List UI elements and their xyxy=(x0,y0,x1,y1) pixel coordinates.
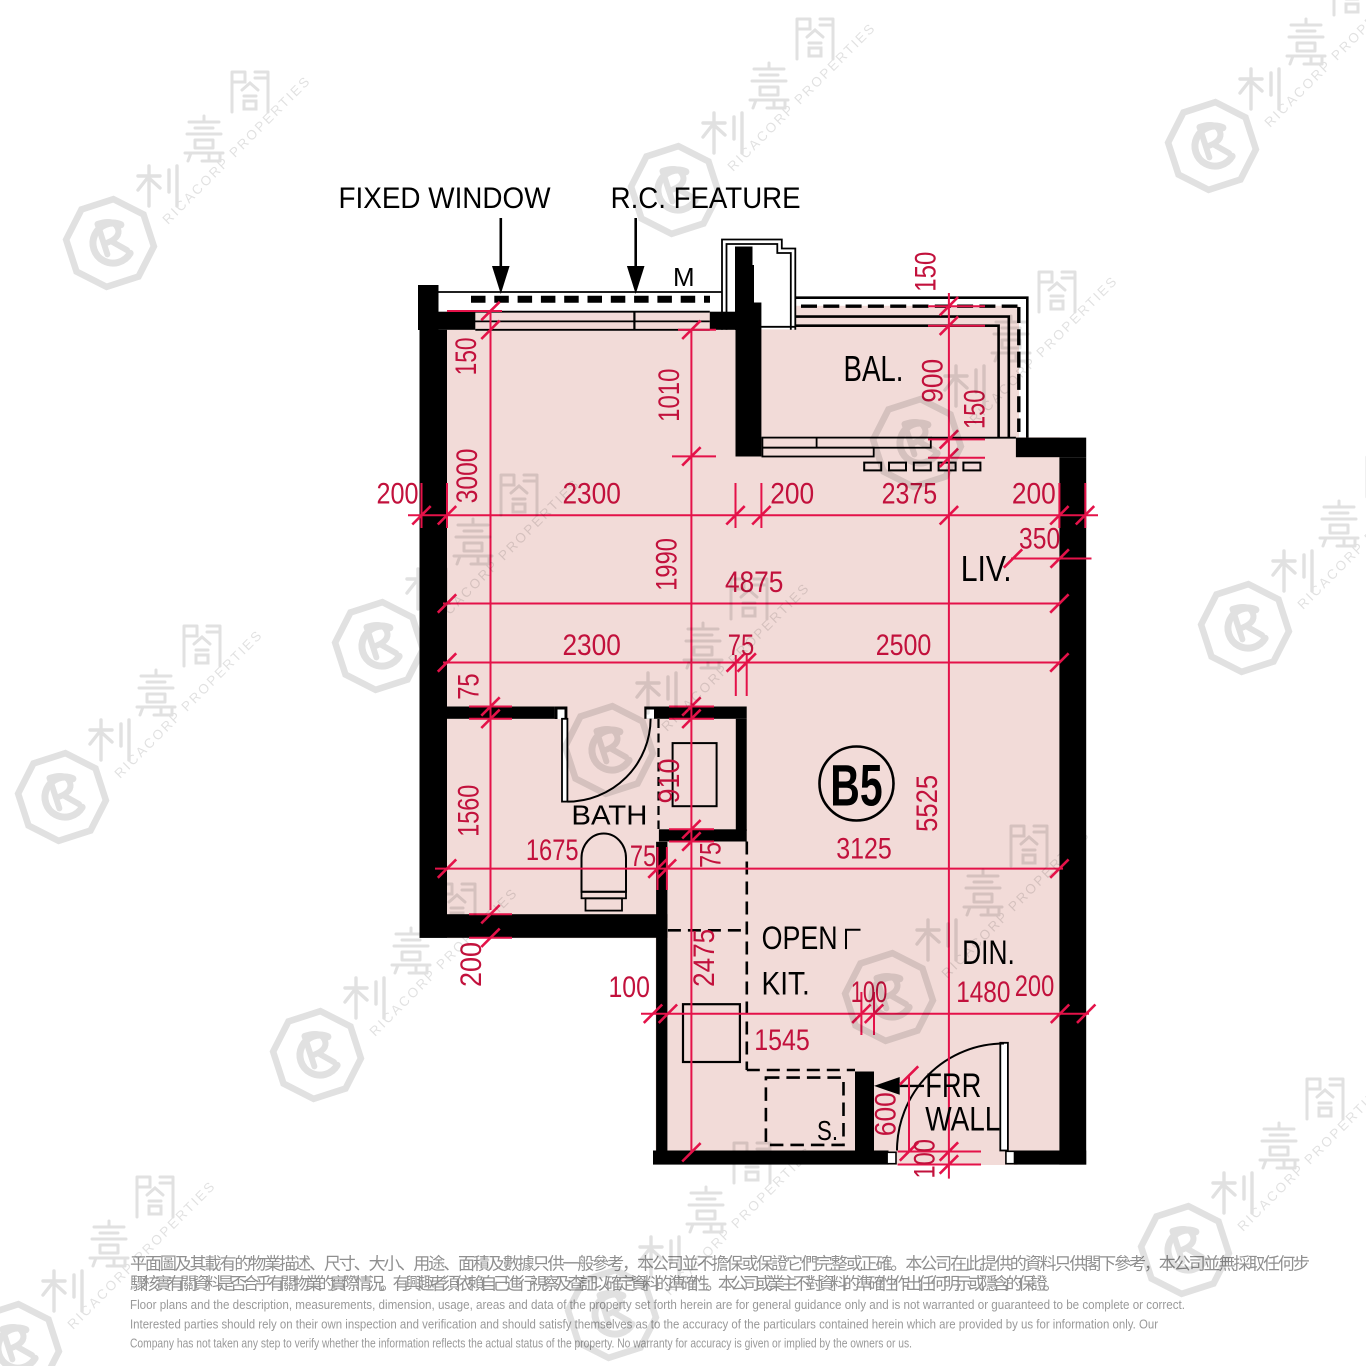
svg-text:Company has not taken any step: Company has not taken any step to verify… xyxy=(130,1336,912,1351)
svg-text:3000: 3000 xyxy=(451,449,484,504)
svg-text:OPEN: OPEN xyxy=(762,920,838,956)
svg-text:1990: 1990 xyxy=(650,538,683,591)
svg-text:WALL: WALL xyxy=(925,1100,1000,1138)
svg-text:910: 910 xyxy=(653,759,686,804)
svg-text:75: 75 xyxy=(453,673,486,699)
svg-text:1480: 1480 xyxy=(956,976,1010,1009)
svg-text:S.: S. xyxy=(817,1115,838,1146)
svg-text:1010: 1010 xyxy=(653,369,686,422)
svg-text:1545: 1545 xyxy=(754,1024,810,1057)
svg-text:2300: 2300 xyxy=(562,629,621,662)
svg-text:5525: 5525 xyxy=(911,775,944,832)
svg-text:350: 350 xyxy=(1019,522,1060,555)
svg-text:600: 600 xyxy=(870,1092,903,1136)
svg-text:200: 200 xyxy=(1012,478,1056,511)
svg-text:75: 75 xyxy=(695,842,728,868)
svg-text:Interested parties should rely: Interested parties should rely on their … xyxy=(130,1317,1159,1332)
svg-text:1560: 1560 xyxy=(453,785,486,837)
svg-text:2475: 2475 xyxy=(688,929,721,987)
svg-text:平面圖及其載有的物業描述、尺寸、大小、用途、面積及數據只供一: 平面圖及其載有的物業描述、尺寸、大小、用途、面積及數據只供一般參考，本公司並不擔… xyxy=(130,1255,1310,1274)
svg-text:BATH: BATH xyxy=(571,800,647,831)
svg-text:3125: 3125 xyxy=(836,832,892,865)
svg-text:75: 75 xyxy=(630,840,656,873)
svg-text:1675: 1675 xyxy=(526,834,579,867)
svg-text:200: 200 xyxy=(377,478,419,511)
svg-text:FIXED WINDOW: FIXED WINDOW xyxy=(339,182,552,215)
svg-text:200: 200 xyxy=(770,478,814,511)
svg-text:Floor plans and the descriptio: Floor plans and the description, measure… xyxy=(130,1297,1185,1312)
svg-text:LIV.: LIV. xyxy=(961,548,1012,589)
svg-text:FRR: FRR xyxy=(925,1067,981,1105)
svg-text:KIT.: KIT. xyxy=(762,966,810,1002)
svg-text:2500: 2500 xyxy=(876,629,932,662)
svg-text:M: M xyxy=(673,262,695,292)
svg-text:200: 200 xyxy=(1015,970,1055,1003)
svg-text:150: 150 xyxy=(910,252,943,292)
svg-text:BAL.: BAL. xyxy=(844,348,904,389)
svg-text:100: 100 xyxy=(908,1139,941,1179)
svg-text:150: 150 xyxy=(450,337,483,375)
svg-text:B5: B5 xyxy=(830,754,882,819)
svg-text:100: 100 xyxy=(609,971,650,1004)
